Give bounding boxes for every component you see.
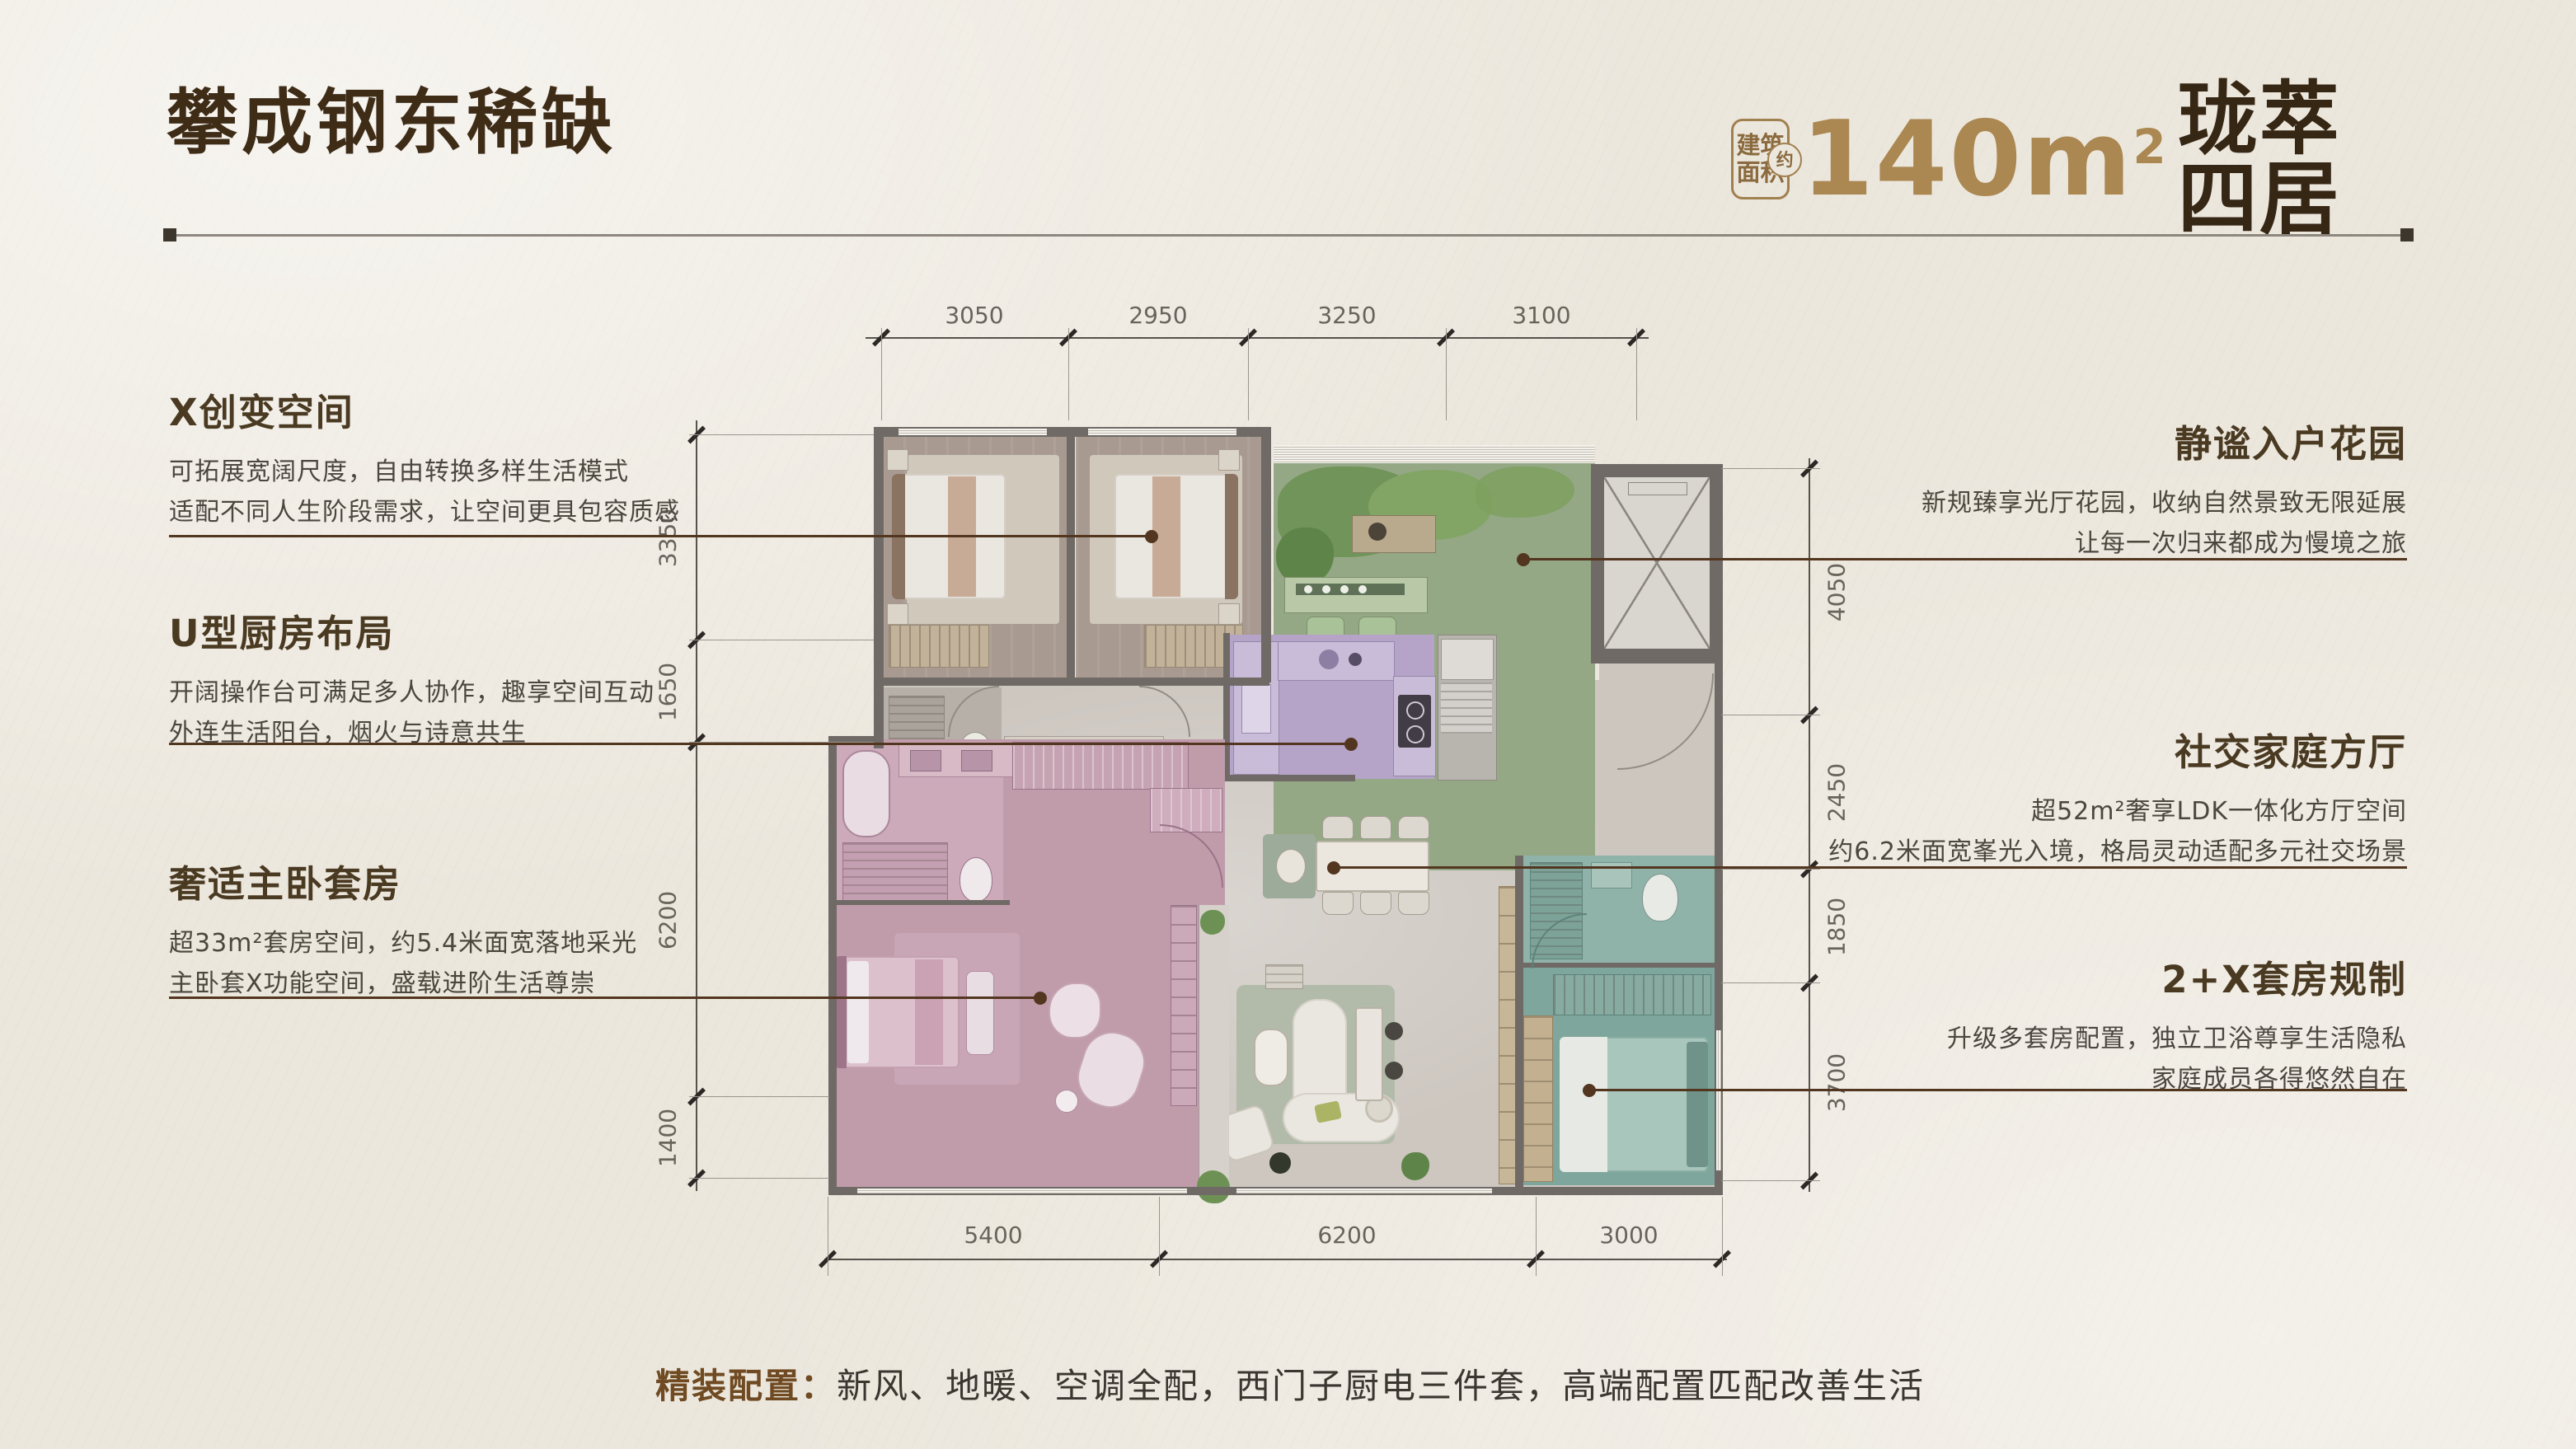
callout-kitchen-title: U型厨房布局 <box>169 603 779 657</box>
bar-dish <box>1304 585 1312 593</box>
master-wardrobe <box>1012 742 1189 790</box>
master-sink <box>910 750 941 771</box>
dim-ext <box>689 640 874 640</box>
wall-elevator-bottom <box>1591 655 1723 664</box>
callout-2x-suite-title: 2+X套房规制 <box>1797 950 2407 1003</box>
dim-right-4: 3700 <box>1823 1025 1851 1141</box>
dim-ext <box>1721 1180 1820 1181</box>
suite-teal-closet-column <box>1523 1015 1553 1182</box>
callout-master-suite: 奢适主卧套房 超33m²套房空间，约5.4米面宽落地采光 主卧套X功能空间，盛载… <box>169 854 779 1004</box>
callout-kitchen: U型厨房布局 开阔操作台可满足多人协作，趣享空间互动 外连生活阳台，烟火与诗意共… <box>169 603 779 753</box>
dim-top-2: 2950 <box>1100 302 1216 329</box>
dim-ext <box>1248 328 1249 420</box>
nightstand <box>1218 449 1240 471</box>
header-divider-cap-right <box>2400 228 2414 242</box>
dim-ext <box>689 1096 829 1097</box>
header-divider-cap-left <box>163 228 176 242</box>
tall-cabinet <box>1441 639 1494 680</box>
master-bath-wall <box>833 900 1010 905</box>
leader-entry-garden <box>1523 558 2407 560</box>
nightstand <box>887 449 908 471</box>
footer-line: 精装配置：新风、地暖、空调全配，西门子厨电三件套，高端配置匹配改善生活 <box>655 1358 1925 1409</box>
leader-dot-2x-suite <box>1583 1084 1596 1097</box>
dim-ext <box>881 328 882 420</box>
nightstand <box>1218 603 1240 625</box>
dining-chair <box>1398 816 1429 839</box>
window-master-south <box>857 1189 1187 1193</box>
dim-ext <box>1636 328 1637 420</box>
wall-left-upper <box>874 427 884 748</box>
callout-family-hall-line1: 超52m²奢享LDK一体化方厅空间 <box>1797 792 2407 832</box>
master-side-table <box>1055 1090 1078 1113</box>
wall-bedroom-garden <box>1261 427 1271 682</box>
leader-master-suite <box>169 996 1040 999</box>
dim-ext <box>828 1197 828 1276</box>
dim-bottom-1: 5400 <box>936 1222 1051 1249</box>
dining-chair <box>1322 892 1354 915</box>
area-value-group: 140m2 <box>1801 107 2166 211</box>
dim-left-2: 1650 <box>655 635 682 750</box>
dim-left-3: 6200 <box>655 863 682 978</box>
suite-teal-toilet <box>1642 874 1678 921</box>
master-closet-strip <box>1171 905 1197 1106</box>
leader-dot-kitchen <box>1344 738 1358 751</box>
dim-top-4: 3100 <box>1484 302 1599 329</box>
callout-entry-garden-title: 静谧入户花园 <box>1797 414 2407 467</box>
area-headline: 建筑 面积 约 140m2 珑萃四居 <box>1731 79 2409 239</box>
window-suite-east <box>1716 1030 1721 1170</box>
dim-ext <box>1722 1197 1723 1276</box>
dim-right-2: 2450 <box>1823 735 1851 851</box>
callout-master-suite-line1: 超33m²套房空间，约5.4米面宽落地采光 <box>169 924 779 964</box>
footer-label: 精装配置： <box>655 1366 837 1406</box>
leader-dot-x-space <box>1145 530 1158 543</box>
bedroom-2-wardrobe <box>889 625 989 668</box>
bar-dish <box>1340 585 1349 593</box>
suite-teal-pillows <box>1687 1042 1708 1167</box>
leader-kitchen <box>169 743 1351 745</box>
callout-x-space-line2: 适配不同人生阶段需求，让空间更具包容质感 <box>169 493 779 533</box>
master-pillows <box>847 961 869 1063</box>
leader-x-space <box>169 535 1152 537</box>
callout-family-hall-title: 社交家庭方厅 <box>1797 722 2407 776</box>
dim-ext <box>1159 1197 1160 1276</box>
callout-entry-garden: 静谧入户花园 新规臻享光厅花园，收纳自然景致无限延展 让每一次归来都成为慢境之旅 <box>1797 414 2407 564</box>
bar-dish <box>1358 585 1367 593</box>
master-toilet <box>960 857 992 902</box>
kitchen-pot <box>1349 653 1362 666</box>
master-bench <box>966 971 994 1055</box>
callout-x-space: X创变空间 可拓展宽阔尺度，自由转换多样生活模式 适配不同人生阶段需求，让空间更… <box>169 382 779 532</box>
master-lounge-chair-1 <box>1049 982 1101 1039</box>
master-bathtub <box>842 750 890 837</box>
tv-bench <box>1265 964 1303 989</box>
dim-ext <box>1721 468 1820 469</box>
suite-teal-bed-fold <box>1560 1037 1607 1172</box>
leader-family-hall <box>1334 866 2407 869</box>
window-bedroom-3 <box>1088 429 1236 435</box>
window-living-south <box>1236 1189 1492 1193</box>
dim-ext <box>1536 1197 1537 1276</box>
dim-line-right <box>1809 458 1810 1192</box>
callout-master-suite-title: 奢适主卧套房 <box>169 854 779 907</box>
stove-burner <box>1406 725 1424 743</box>
master-shower <box>842 842 948 902</box>
dim-ext <box>1446 328 1447 420</box>
callout-x-space-line1: 可拓展宽阔尺度，自由转换多样生活模式 <box>169 453 779 493</box>
elevator-door <box>1628 482 1687 495</box>
dim-line-bottom <box>824 1259 1727 1260</box>
console-table <box>1355 1007 1383 1101</box>
dim-ext <box>689 434 874 435</box>
dining-end-plate <box>1276 849 1306 884</box>
dim-ext <box>1721 715 1820 715</box>
garden-fire-table <box>1352 515 1436 553</box>
area-badge: 建筑 面积 约 <box>1731 119 1790 199</box>
dining-chair <box>1398 892 1429 915</box>
nightstand <box>887 603 908 625</box>
callout-2x-suite: 2+X套房规制 升级多套房配置，独立卫浴尊享生活隐私 家庭成员各得悠然自在 <box>1797 950 2407 1100</box>
coffee-table <box>1254 1029 1288 1086</box>
master-sink <box>961 750 992 771</box>
leader-dot-master-suite <box>1034 992 1047 1005</box>
callout-x-space-title: X创变空间 <box>169 382 779 436</box>
kitchen-wall-bottom <box>1223 775 1355 781</box>
leader-dot-entry-garden <box>1517 553 1530 566</box>
callout-family-hall: 社交家庭方厅 超52m²奢享LDK一体化方厅空间 约6.2米面宽峯光入境，格局灵… <box>1797 722 2407 872</box>
kitchen-dish <box>1319 649 1339 669</box>
console-chair <box>1385 1062 1403 1080</box>
window-bedroom-2 <box>899 429 1047 435</box>
wall-suite-left <box>1515 856 1523 1187</box>
area-value: 140m <box>1801 98 2133 219</box>
callout-kitchen-line1: 开阔操作台可满足多人协作，趣享空间互动 <box>169 673 779 714</box>
dining-chair <box>1360 816 1391 839</box>
area-suffix: 珑萃四居 <box>2178 79 2409 239</box>
header-divider <box>170 234 2405 237</box>
callout-entry-garden-line1: 新规臻享光厅花园，收纳自然景致无限延展 <box>1797 484 2407 524</box>
master-bed-runner <box>915 959 943 1065</box>
dim-ext <box>1721 982 1820 983</box>
dim-top-1: 3050 <box>917 302 1032 329</box>
dim-line-top <box>866 337 1649 339</box>
approx-circle: 约 <box>1767 143 1802 177</box>
footer-text: 新风、地暖、空调全配，西门子厨电三件套，高端配置匹配改善生活 <box>837 1366 1925 1406</box>
leader-2x-suite <box>1589 1089 2407 1091</box>
area-sup: 2 <box>2133 119 2165 175</box>
suite-teal-wardrobe <box>1553 974 1711 1015</box>
dim-left-4: 1400 <box>655 1081 682 1196</box>
console-chair <box>1385 1022 1403 1040</box>
stove-burner <box>1406 701 1424 720</box>
dim-right-1: 4050 <box>1823 535 1851 650</box>
garden-parapet <box>1274 445 1595 463</box>
wall-bedrooms-bottom <box>874 678 1269 686</box>
kitchen-sink <box>1241 684 1271 734</box>
wall-bedroom-divider <box>1067 435 1075 682</box>
dining-chair <box>1360 892 1391 915</box>
bar-dish <box>1322 585 1330 593</box>
garden-bowl <box>1368 523 1387 541</box>
dining-chair <box>1322 816 1354 839</box>
dim-ext <box>689 1178 829 1179</box>
page-title: 攀成钢东稀缺 <box>167 64 617 167</box>
wall-left-lower <box>828 736 837 1195</box>
dim-left-1: 3350 <box>655 481 682 596</box>
dim-top-3: 3250 <box>1289 302 1405 329</box>
callout-2x-suite-line2: 家庭成员各得悠然自在 <box>1797 1060 2407 1100</box>
dim-bottom-2: 6200 <box>1289 1222 1405 1249</box>
dim-ext <box>1068 328 1069 420</box>
dim-ext <box>1721 869 1820 870</box>
bedroom-3-headboard <box>1225 474 1238 599</box>
dim-right-3: 1850 <box>1823 870 1851 985</box>
garden-bar-counter <box>1284 577 1428 613</box>
side-planter <box>1269 1152 1291 1174</box>
fridge <box>1441 682 1492 734</box>
master-balcony <box>1199 905 1229 1189</box>
leader-dot-family-hall <box>1327 861 1340 875</box>
dim-bottom-3: 3000 <box>1571 1222 1687 1249</box>
elevator-cross <box>1604 477 1710 649</box>
callout-2x-suite-line1: 升级多套房配置，独立卫浴尊享生活隐私 <box>1797 1020 2407 1060</box>
